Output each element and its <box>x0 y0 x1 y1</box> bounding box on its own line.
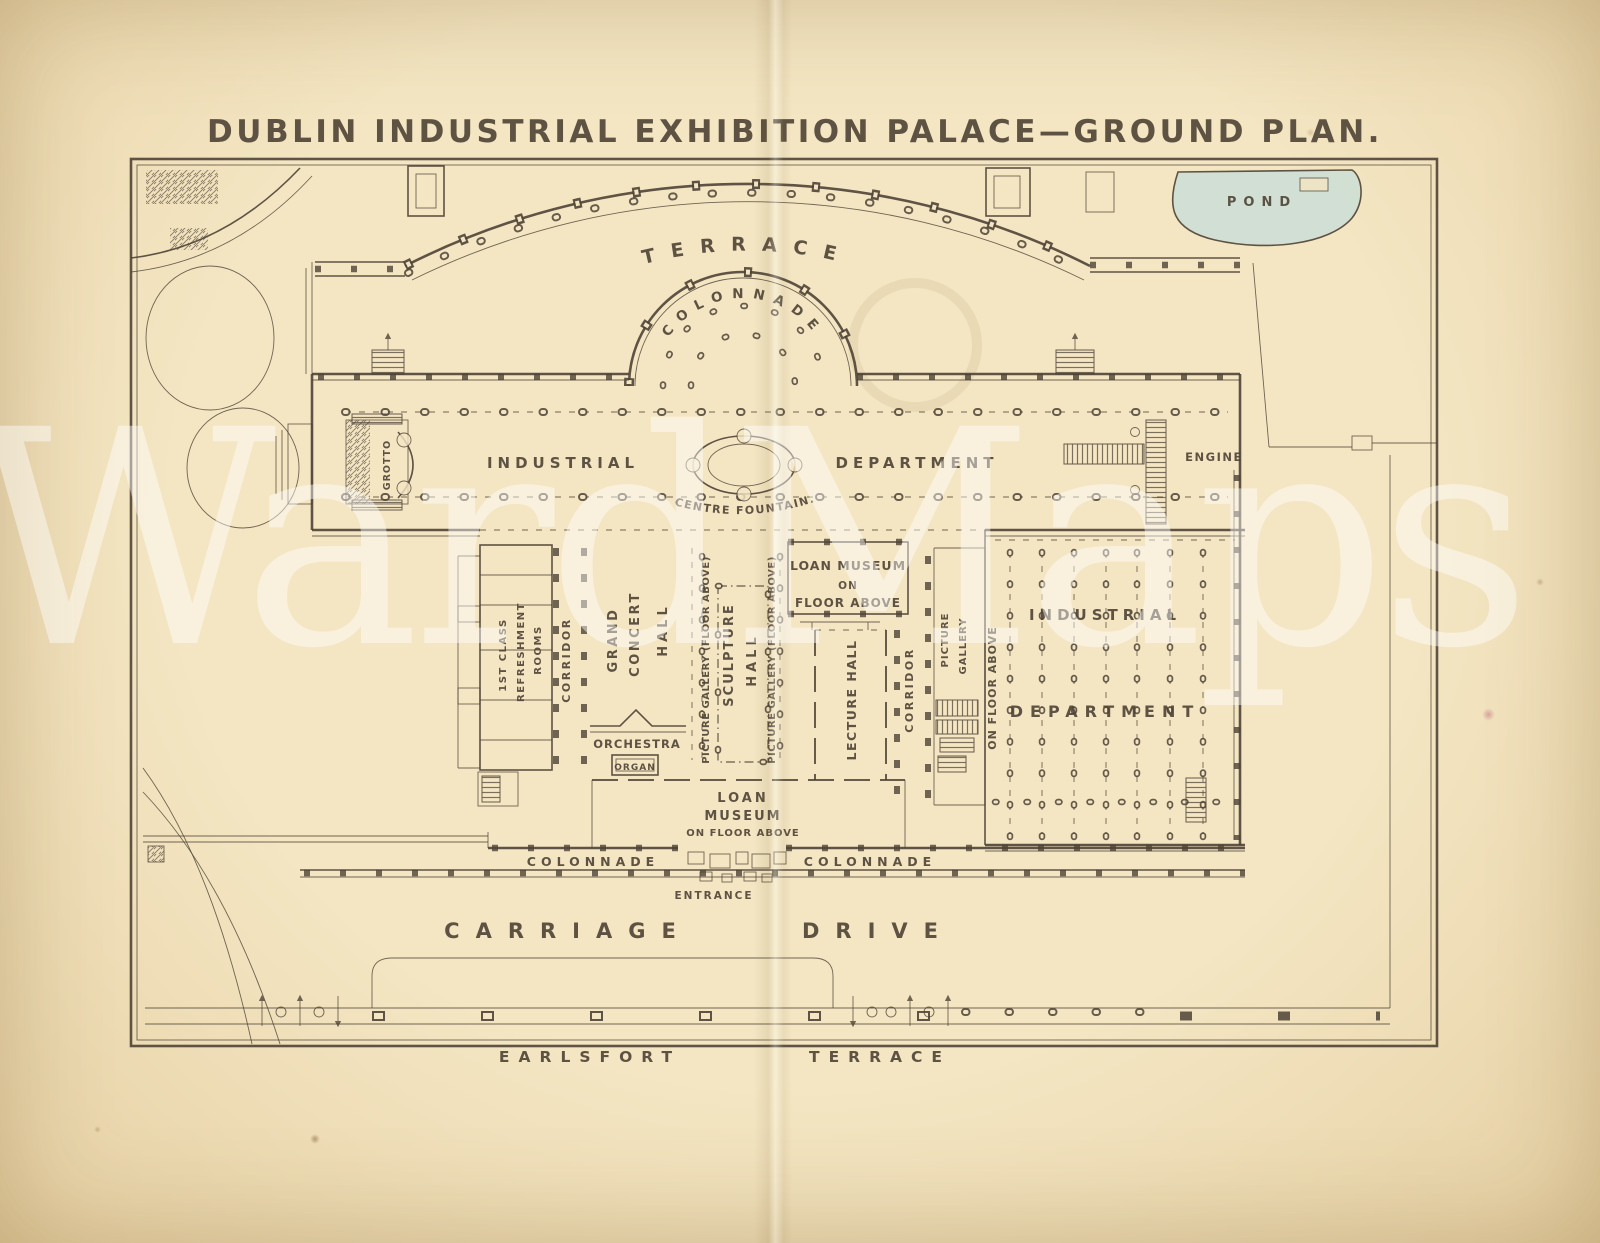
label-rooms: ROOMS <box>533 625 544 674</box>
label-pond: POND <box>1227 195 1297 210</box>
engine-house: ENGINE <box>1064 420 1243 524</box>
label-picture-east-1: PICTURE <box>940 613 951 668</box>
carriage-drive: CARRIAGE DRIVE <box>372 919 954 1008</box>
sculpture-hall: PICTURE GALLERY (FLOOR ABOVE) SCULPTURE … <box>701 556 780 765</box>
label-grand: GRAND <box>606 608 621 673</box>
garden-southwest <box>143 768 280 1044</box>
label-department-east: DEPARTMENT <box>836 454 999 472</box>
west-corridor: CORRIDOR <box>556 548 584 768</box>
label-loan-museum-south-2: MUSEUM <box>704 809 781 824</box>
earlsfort-terrace-road: EARLSFORT TERRACE <box>145 996 1390 1066</box>
label-loan-museum-north-3: FLOOR ABOVE <box>795 596 901 610</box>
label-picture-gallery-west: PICTURE GALLERY (FLOOR ABOVE) <box>701 556 712 764</box>
label-lecture-hall: LECTURE HALL <box>844 640 859 761</box>
north-colonnade: COLONNADE <box>629 272 857 386</box>
label-colonnade-south-east: COLONNADE <box>804 854 936 869</box>
east-picture-gallery: PICTURE GALLERY ON FLOOR ABOVE <box>934 548 999 805</box>
label-loan-museum-south-3: ON FLOOR ABOVE <box>686 828 800 839</box>
pond: POND <box>1173 170 1361 245</box>
label-carriage: CARRIAGE <box>444 919 692 943</box>
boundary-east <box>1253 263 1437 1008</box>
label-earlsfort: EARLSFORT <box>499 1048 681 1066</box>
label-terrace-text: TERRACE <box>640 234 854 269</box>
label-on-floor-above-east: ON FLOOR ABOVE <box>986 626 999 750</box>
label-sculpture: SCULPTURE <box>722 603 737 707</box>
centre-fountain: CENTRE FOUNTAIN. <box>673 429 816 517</box>
terrace-balustrade: TERRACE <box>315 166 1240 280</box>
grotto: GROTTO <box>346 414 413 510</box>
label-colonnade-south-west: COLONNADE <box>527 854 659 869</box>
label-loan-museum-north-1: LOAN MUSEUM <box>790 558 906 573</box>
map-title: DUBLIN INDUSTRIAL EXHIBITION PALACE—GROU… <box>207 114 1383 150</box>
label-picture-east-2: GALLERY <box>958 618 969 675</box>
label-loan-museum-south-1: LOAN <box>717 791 768 806</box>
east-industrial-department: INDUSTRIAL DEPARTMENT <box>985 465 1245 851</box>
label-industrial-dept-east-1: INDUSTRIAL <box>1029 606 1181 624</box>
label-terrace: TERRACE <box>640 234 854 269</box>
label-orchestra: ORCHESTRA <box>593 737 680 751</box>
embossed-seal <box>853 283 977 407</box>
label-concert-hall: HALL <box>656 603 671 657</box>
map-sheet: DUBLIN INDUSTRIAL EXHIBITION PALACE—GROU… <box>0 0 1600 1243</box>
lecture-hall: LECTURE HALL <box>815 630 886 780</box>
label-corridor-east: CORRIDOR <box>903 647 916 732</box>
label-first-class: 1ST CLASS <box>498 618 509 691</box>
east-corridor: CORRIDOR <box>897 556 928 805</box>
label-terrace-street: TERRACE <box>809 1048 951 1066</box>
grand-concert-hall: GRAND CONCERT HALL ORCHESTRA ORGAN <box>590 548 692 775</box>
label-industrial-west: INDUSTRIAL <box>487 454 639 472</box>
label-grotto: GROTTO <box>382 440 393 490</box>
label-drive: DRIVE <box>802 919 954 943</box>
label-sculpture-hall: HALL <box>745 633 760 687</box>
garden-northwest <box>131 168 312 528</box>
label-corridor-west: CORRIDOR <box>560 617 573 702</box>
label-picture-gallery-east: PICTURE GALLERY (FLOOR ABOVE) <box>767 556 778 764</box>
south-loan-museum: LOAN MUSEUM ON FLOOR ABOVE <box>592 780 905 848</box>
label-entrance: ENTRANCE <box>675 890 754 902</box>
label-engine: ENGINE <box>1185 450 1243 464</box>
label-loan-museum-north-2: ON <box>838 580 858 592</box>
refreshment-rooms: 1ST CLASS REFRESHMENT ROOMS <box>458 545 552 806</box>
label-industrial-dept-east-2: DEPARTMENT <box>1010 702 1201 721</box>
ground-plan-drawing: DUBLIN INDUSTRIAL EXHIBITION PALACE—GROU… <box>0 0 1600 1243</box>
label-organ: ORGAN <box>614 763 655 773</box>
label-refreshment: REFRESHMENT <box>516 602 527 702</box>
north-loan-museum: LOAN MUSEUM ON FLOOR ABOVE <box>788 542 908 630</box>
label-concert: CONCERT <box>628 591 643 677</box>
